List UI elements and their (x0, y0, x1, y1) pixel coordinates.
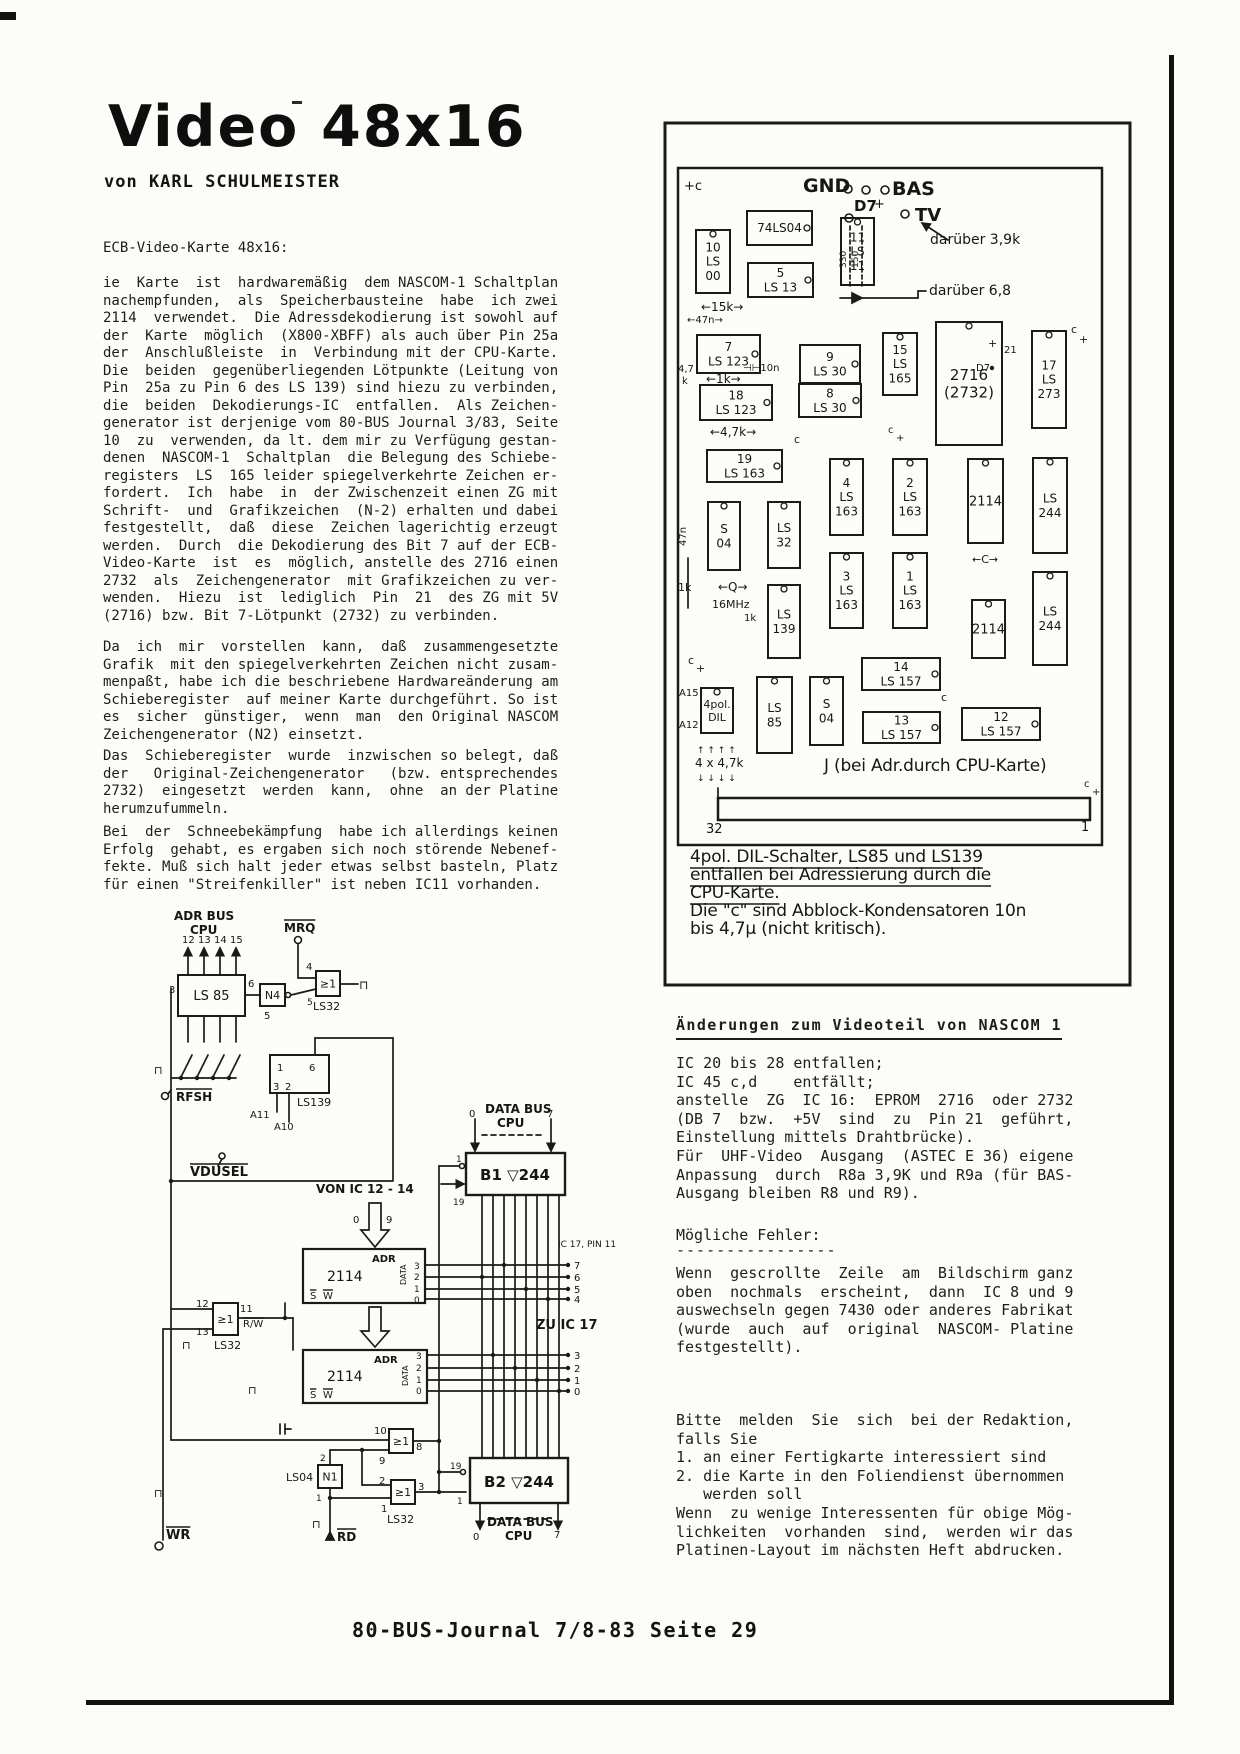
fig-dot (480, 1275, 484, 1279)
fig-circle (461, 1470, 466, 1475)
label-rd: RD (337, 1530, 356, 1544)
svg-text:(2732): (2732) (944, 384, 994, 402)
svg-text:163: 163 (835, 598, 858, 612)
ic14-ls157: 14LS 157 (862, 658, 940, 690)
fig-text: ⊓ (154, 1487, 163, 1500)
svg-text:LS: LS (839, 584, 853, 598)
svg-text:5: 5 (777, 266, 785, 280)
svg-text:LS: LS (777, 521, 791, 535)
fig-text: ADR (374, 1355, 398, 1366)
fig-text: 2 (285, 1082, 291, 1093)
ic8-ls30: 8LS 30 (799, 384, 861, 417)
fig-text: LS32 (313, 1000, 340, 1013)
fig-text: 4,7 (678, 364, 694, 375)
fig-text: 10 (374, 1426, 387, 1437)
fig-text: 1 (316, 1494, 322, 1504)
svg-text:≥1: ≥1 (393, 1435, 409, 1448)
fig-text: +c (684, 179, 702, 194)
fig-text: 2 (320, 1454, 326, 1464)
fig-dot (566, 1263, 570, 1267)
fig-text: ⊓ (154, 1064, 163, 1077)
svg-text:LS 13: LS 13 (764, 280, 797, 294)
ic-ls139: LS139 (768, 585, 800, 658)
pin-1: 1 (1081, 820, 1089, 835)
paragraph-1: ie Karte ist hardwaremäßig dem NASCOM-1 … (103, 275, 558, 625)
fig-text: 3 (414, 1262, 420, 1272)
ic9-ls30: 9LS 30 (800, 345, 860, 383)
fig-dot (566, 1287, 570, 1291)
svg-text:11: 11 (850, 231, 865, 245)
fig-text: 3 (574, 1351, 580, 1362)
svg-text:163: 163 (899, 504, 922, 518)
article-subtitle: ECB-Video-Karte 48x16: (103, 240, 288, 256)
svg-text:LS: LS (706, 255, 720, 269)
fig-text: 1 (414, 1285, 420, 1295)
fig-text: LS139 (297, 1096, 331, 1109)
fig-text: 1k (744, 613, 756, 624)
fig-line (315, 1038, 393, 1180)
fig-text: 13 (198, 935, 211, 946)
fig-text: LS32 (214, 1339, 241, 1352)
fig-poly (326, 1532, 334, 1540)
paragraph-3: Das Schieberegister wurde inzwischen so … (103, 748, 558, 818)
fig-text: c (1071, 323, 1077, 336)
section-redaktion: Bitte melden Sie sich bei der Redaktion,… (676, 1411, 1073, 1560)
fig-text: DATA (401, 1365, 410, 1386)
fig-poly (361, 1307, 389, 1347)
fig-text: + (1079, 333, 1088, 346)
pin-32: 32 (706, 822, 723, 837)
fig-dot (283, 1316, 287, 1320)
res-1k: ←1k→ (706, 372, 741, 386)
fig-line (197, 1055, 208, 1077)
svg-text:LS 30: LS 30 (813, 364, 846, 378)
fig-text: c (941, 691, 947, 704)
fig-text: 7 (554, 1530, 560, 1541)
svg-text:LS 163: LS 163 (724, 466, 765, 480)
svg-text:S: S (720, 522, 728, 536)
fig-line (918, 291, 926, 298)
fig-circle (901, 210, 909, 218)
svg-text:LS: LS (850, 245, 864, 259)
ic19-ls163: 19LS 163 (707, 450, 782, 482)
fig-line (330, 1488, 391, 1498)
ram-2114-upper: 2114 (968, 459, 1003, 543)
svg-text:244: 244 (1039, 506, 1062, 520)
svg-text:7: 7 (725, 340, 733, 354)
ic-ls85: LS85 (757, 677, 792, 753)
fig-dot (566, 1378, 570, 1382)
fig-line (213, 1055, 224, 1077)
svg-text:15: 15 (892, 343, 907, 357)
fig-text: 15 (230, 935, 243, 946)
svg-text:74LS04: 74LS04 (757, 221, 802, 235)
svg-text:32: 32 (776, 535, 791, 549)
fig-text: 19 (450, 1462, 462, 1472)
fig-text: 3 (273, 1082, 279, 1093)
svg-text:85: 85 (767, 715, 782, 729)
fig-text: 12 (182, 935, 195, 946)
svg-text:17: 17 (1041, 359, 1056, 373)
fig-text: W (323, 1390, 333, 1401)
jumper-note: J (bei Adr.durch CPU-Karte) (823, 756, 1046, 776)
fig-text: + (874, 197, 885, 212)
fig-text: B1 ▽244 (480, 1166, 550, 1184)
scan-edge-rule-right (1169, 55, 1174, 1705)
fig-text: 5 (307, 998, 313, 1008)
fig-dot (566, 1353, 570, 1357)
fig-line (229, 1055, 240, 1077)
ic13-ls157: 13LS 157 (863, 712, 940, 743)
svg-text:14: 14 (893, 660, 908, 674)
fig-line (362, 1450, 391, 1485)
fig-text: 0 (416, 1387, 422, 1397)
svg-text:10: 10 (705, 241, 720, 255)
label-zu-ic17: ZU IC 17 (536, 1318, 598, 1333)
fig-text: 3 (169, 985, 175, 996)
label-rfsh: RFSH (176, 1090, 212, 1104)
ic10-ls00: 10LS00 (696, 230, 730, 293)
caption-line-5: bis 4,7µ (nicht kritisch). (690, 919, 886, 939)
svg-text:LS: LS (1042, 373, 1056, 387)
fig-text: 2 (416, 1364, 422, 1374)
fig-dot (211, 1076, 215, 1080)
sch-or2: ≥1 (213, 1303, 238, 1335)
res-pack: 4 x 4,7k (695, 756, 743, 770)
svg-text:139: 139 (773, 622, 796, 636)
svg-text:18: 18 (728, 389, 743, 403)
sch-or3: ≥1 (389, 1429, 413, 1453)
fig-text: 6 (248, 979, 254, 990)
fig-text: ⊓ (359, 978, 368, 992)
fig-text: 0 (473, 1532, 479, 1543)
svg-text:LS: LS (1043, 492, 1057, 506)
ic4-ls163: 4LS163 (830, 459, 863, 535)
section-body-fehler: Wenn gescrollte Zeile am Bildschirm ganz… (676, 1264, 1073, 1357)
fig-text: DATA (399, 1264, 408, 1285)
sch-ls85: LS 85 (178, 975, 245, 1016)
fig-text: c (794, 433, 800, 446)
fig-text: 2 (574, 1364, 580, 1375)
svg-text:LS 123: LS 123 (715, 403, 756, 417)
fig-dot (437, 1490, 441, 1494)
schematic-svg: ADR BUSCPU12131415MRQLS 8536N455≥14LS32⊓… (130, 828, 640, 1573)
res-15k: ←15k→ (701, 300, 743, 314)
ic5-ls13: 5LS 13 (748, 263, 813, 297)
note-ic17-pin11: IC 17, PIN 11 (558, 1240, 616, 1250)
fig-text: 1 (574, 1376, 580, 1387)
label-rw: R/W (243, 1319, 263, 1330)
label-wr: WR (166, 1528, 190, 1543)
fig-circle (295, 937, 302, 944)
svg-text:LS: LS (839, 490, 853, 504)
label-ls04: LS04 (286, 1471, 313, 1484)
ic-74ls04: 74LS04 (747, 211, 812, 245)
fig-text: 21 (1004, 345, 1017, 356)
fig-text: 1 (277, 1063, 283, 1074)
cap-10n: ⊣⊢10n (743, 363, 779, 374)
pcb-layout-figure: +cGNDBASD7+TVdarüber 3,9k330150darüber 6… (600, 110, 1140, 990)
svg-text:13: 13 (894, 714, 909, 728)
label-mrq: MRQ (284, 921, 315, 935)
ic3-ls163: 3LS163 (830, 553, 863, 628)
fig-text: S (310, 1390, 316, 1401)
scan-edge-rule-bottom (86, 1700, 1174, 1705)
ic-ls244-upper: LS244 (1033, 458, 1067, 553)
fig-text: 0 (574, 1387, 580, 1398)
fig-dot (328, 1496, 332, 1500)
svg-text:4: 4 (843, 476, 851, 490)
fig-text: ⊓ (312, 1518, 321, 1531)
svg-text:165: 165 (889, 371, 912, 385)
fig-text: 8 (416, 1442, 422, 1453)
fig-text: 0 (414, 1296, 420, 1306)
schematic-figure: ADR BUSCPU12131415MRQLS 8536N455≥14LS32⊓… (130, 828, 640, 1573)
cap-47n: ←47n→ (687, 315, 723, 326)
fig-dot (990, 366, 994, 370)
section-body-aenderungen: IC 20 bis 28 entfallen; IC 45 c,d entfäl… (676, 1054, 1073, 1203)
svg-text:LS: LS (903, 490, 917, 504)
svg-text:LS: LS (903, 584, 917, 598)
article-byline: von KARL SCHULMEISTER (104, 172, 340, 192)
fig-text: 6 (309, 1063, 315, 1074)
fig-circle (881, 186, 889, 194)
ic17-ls273: 17LS273 (1032, 331, 1066, 428)
caption-line-1: 4pol. DIL-Schalter, LS85 und LS139 (690, 847, 983, 867)
fig-text: ↓ ↓ ↓ ↓ (697, 774, 736, 784)
fig-text: 4 (306, 962, 312, 973)
fig-text: 7 (547, 1109, 553, 1120)
fig-circle (155, 1542, 163, 1550)
fig-text: CPU (497, 1116, 524, 1130)
fig-dot (524, 1287, 528, 1291)
pad-label-bas: BAS (892, 178, 935, 200)
paragraph-2: Da ich mir vorstellen kann, daß zusammen… (103, 639, 558, 744)
fig-text: ↑ ↑ ↑ ↑ (697, 746, 736, 756)
svg-text:≥1: ≥1 (217, 1313, 233, 1326)
svg-text:00: 00 (705, 269, 720, 283)
svg-text:2: 2 (906, 476, 914, 490)
ic1-ls163: 1LS163 (893, 553, 927, 628)
crystal-q: ←Q→ (718, 580, 748, 594)
fig-text: k (682, 376, 688, 387)
svg-text:4pol.: 4pol. (703, 698, 730, 711)
svg-text:273: 273 (1038, 387, 1061, 401)
svg-text:LS: LS (777, 608, 791, 622)
svg-text:S: S (823, 697, 831, 711)
sch-or1: ≥1 (316, 971, 340, 996)
svg-text:2114: 2114 (969, 495, 1002, 510)
fig-text: 2114 (327, 1269, 363, 1285)
svg-text:LS: LS (893, 357, 907, 371)
scan-artifact (0, 12, 16, 20)
fig-text: 2114 (327, 1369, 363, 1385)
fig-text: c (688, 654, 694, 667)
fig-text: 19 (453, 1198, 465, 1208)
fig-text: 47n (678, 527, 689, 546)
article-title: Video 48x16 (108, 94, 527, 160)
fig-dot (566, 1389, 570, 1393)
fig-dot (179, 1076, 183, 1080)
svg-text:LS 157: LS 157 (881, 728, 922, 742)
note-3-9k: darüber 3,9k (930, 232, 1021, 248)
sch-n4: N4 (260, 984, 285, 1006)
edge-connector (718, 798, 1090, 820)
svg-text:3: 3 (843, 570, 851, 584)
note-6-8: darüber 6,8 (929, 283, 1011, 299)
svg-text:163: 163 (899, 598, 922, 612)
fig-line (181, 1055, 192, 1077)
fig-poly (361, 1203, 389, 1247)
fig-dot (566, 1297, 570, 1301)
ic-s04-lower: S04 (810, 677, 843, 745)
ic-s04-upper: S04 (708, 502, 740, 570)
fig-text: A10 (274, 1122, 294, 1133)
svg-text:2114: 2114 (972, 623, 1005, 638)
ic15-ls165: 15LS165 (883, 333, 917, 395)
pad-label-tv: TV (915, 205, 941, 226)
fig-text: CPU (505, 1529, 532, 1543)
fig-dot (195, 1076, 199, 1080)
fig-text: 1 (416, 1376, 422, 1386)
fig-text: 9 (386, 1215, 392, 1226)
fig-text: B2 ▽244 (484, 1473, 554, 1491)
fig-circle (286, 993, 291, 998)
fig-text: 11 (240, 1304, 253, 1315)
fig-text: 5 (264, 1011, 270, 1022)
fig-circle (219, 1153, 225, 1159)
fig-dot (502, 1263, 506, 1267)
fig-text: + (988, 337, 997, 350)
crystal-16mhz: 16MHz (712, 598, 750, 611)
svg-text:LS: LS (767, 701, 781, 715)
ic2-ls163: 2LS163 (893, 459, 927, 535)
svg-text:1: 1 (906, 570, 914, 584)
fig-line (291, 989, 316, 995)
fig-dot (437, 1470, 441, 1474)
fig-text: W (323, 1291, 333, 1302)
caption-line-4: Die "c" sind Abblock-Kondensatoren 10n (690, 901, 1026, 921)
fig-text: c (888, 425, 894, 436)
fig-text: 0 (469, 1109, 475, 1120)
section-heading-aenderungen: Änderungen zum Videoteil von NASCOM 1 (676, 1016, 1062, 1040)
fig-circle (862, 186, 870, 194)
fig-text: 4 (574, 1295, 580, 1306)
dil-switch: 4pol.DIL (701, 688, 733, 733)
ic18-ls123: 18LS 123 (700, 385, 772, 420)
svg-text:9: 9 (826, 350, 834, 364)
fig-dot (566, 1366, 570, 1370)
svg-text:04: 04 (716, 536, 731, 550)
svg-text:≥1: ≥1 (320, 977, 336, 990)
page-footer: 80-BUS-Journal 7/8-83 Seite 29 (352, 1618, 758, 1642)
magazine-page: Video 48x16 von KARL SCHULMEISTER ECB-Vi… (0, 0, 1240, 1754)
caption-line-2: entfallen bei Adressierung durch die (690, 865, 991, 885)
svg-text:8: 8 (826, 387, 834, 401)
fig-text: + (1092, 787, 1100, 798)
svg-text:19: 19 (737, 452, 752, 466)
fig-text: 3 (416, 1352, 422, 1362)
svg-text:LS 85: LS 85 (193, 989, 229, 1004)
svg-text:≥1: ≥1 (395, 1486, 411, 1499)
ram-2114-lower: 2114 (972, 600, 1005, 658)
fig-dot (227, 1076, 231, 1080)
fig-text: 7 (574, 1261, 580, 1272)
svg-text:12: 12 (993, 710, 1008, 724)
caption-line-3: CPU-Karte. (690, 883, 779, 903)
fig-text: D7 (976, 363, 990, 374)
svg-text:11: 11 (850, 259, 865, 273)
fig-text: ←C→ (972, 553, 998, 566)
ic-ls32: LS32 (768, 502, 800, 568)
fig-dot (546, 1297, 550, 1301)
fig-text: 1 (457, 1497, 463, 1507)
fig-text: A11 (250, 1110, 270, 1121)
label-a15: A15 (679, 688, 699, 699)
fig-text: 6 (574, 1273, 580, 1284)
sch-n1: N1 (318, 1465, 342, 1488)
label-vdusel: VDUSEL (190, 1165, 248, 1180)
fig-dot (566, 1275, 570, 1279)
svg-text:LS: LS (1043, 605, 1057, 619)
fig-text: LS32 (387, 1513, 414, 1526)
svg-text:DIL: DIL (708, 711, 727, 724)
svg-text:LS 157: LS 157 (880, 674, 921, 688)
label-data-bus-bottom: DATA BUS (487, 1515, 554, 1529)
label-von-ic: VON IC 12 - 14 (316, 1182, 414, 1196)
label-a12: A12 (679, 720, 699, 731)
ic-ls244-lower: LS244 (1033, 572, 1067, 665)
svg-text:N4: N4 (265, 989, 280, 1002)
sch-or4: ≥1 (391, 1480, 415, 1504)
svg-text:N1: N1 (322, 1470, 337, 1483)
svg-text:163: 163 (835, 504, 858, 518)
svg-text:04: 04 (819, 711, 834, 725)
fig-dot (437, 1439, 441, 1443)
pcb-layout-svg: +cGNDBASD7+TVdarüber 3,9k330150darüber 6… (600, 110, 1140, 990)
svg-text:LS 30: LS 30 (813, 401, 846, 415)
fig-text: c (1084, 779, 1090, 790)
fig-text: + (696, 662, 705, 675)
label-adr-bus: ADR BUS (174, 909, 234, 923)
svg-text:244: 244 (1039, 619, 1062, 633)
fig-circle (460, 1164, 465, 1169)
ic12-ls157: 12LS 157 (962, 708, 1040, 740)
fig-text: ⊓ (248, 1384, 257, 1397)
fig-text: 1k (678, 581, 692, 594)
fig-text: S (310, 1291, 316, 1302)
fig-text: 2 (414, 1273, 420, 1283)
section-rule-fehler: ---------------- (676, 1241, 837, 1260)
fig-text: + (896, 433, 904, 444)
fig-text: 14 (214, 935, 227, 946)
res-4-7k: ←4,7k→ (710, 425, 756, 439)
fig-text: 0 (353, 1215, 359, 1226)
fig-text: 2 (379, 1476, 385, 1487)
pad-label-gnd: GND (803, 175, 850, 197)
fig-text: ⊓ (182, 1339, 191, 1352)
fig-text: ADR (372, 1254, 396, 1265)
svg-text:LS 157: LS 157 (980, 724, 1021, 738)
fig-text: 9 (379, 1456, 385, 1467)
label-data-bus-top: DATA BUS (485, 1102, 552, 1116)
